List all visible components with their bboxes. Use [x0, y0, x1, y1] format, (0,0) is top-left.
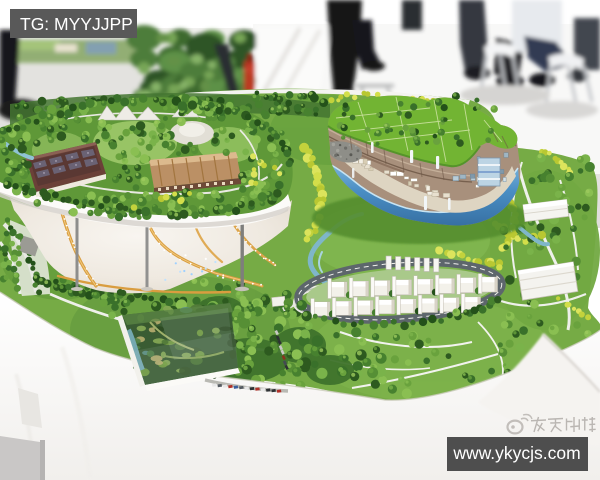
svg-text:TG: MYYJJPP: TG: MYYJJPP	[20, 14, 133, 34]
svg-text:www.ykycjs.com: www.ykycjs.com	[452, 443, 580, 463]
